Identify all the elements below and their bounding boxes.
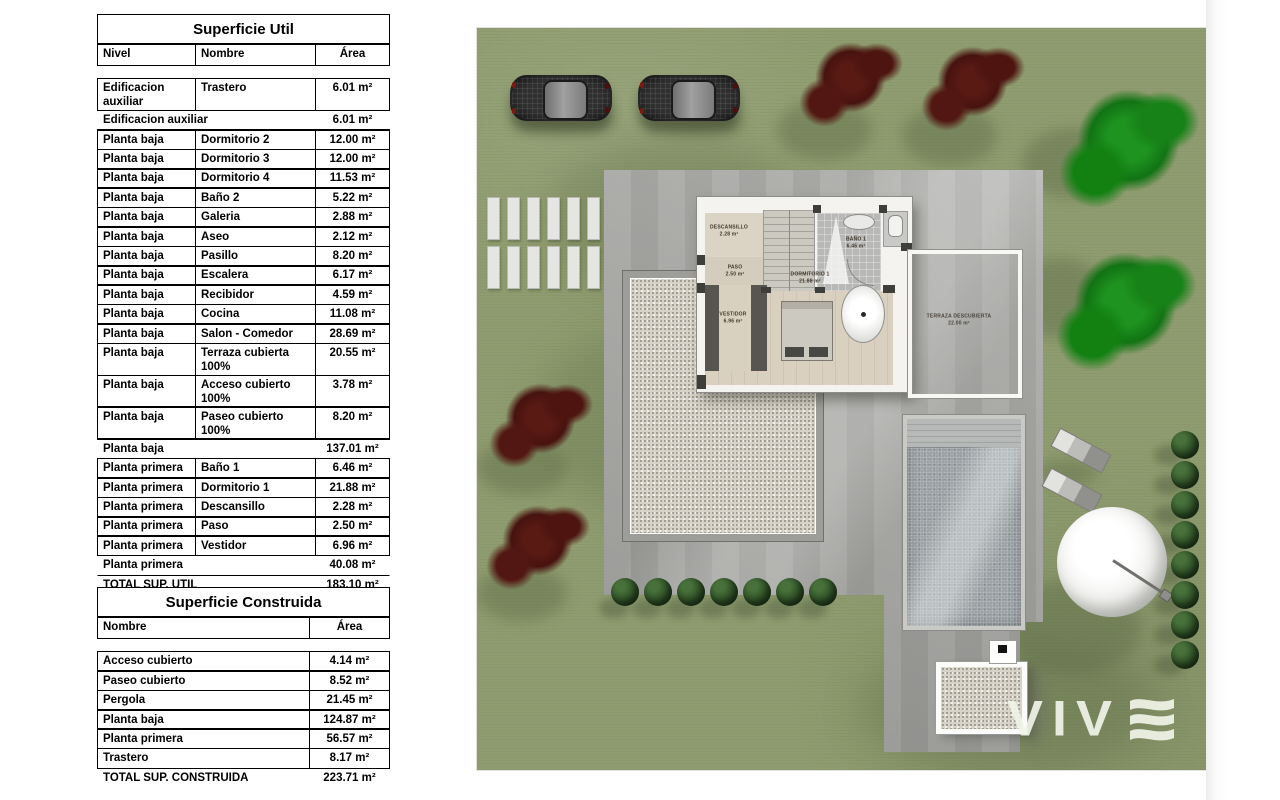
cell: Trastero — [196, 79, 316, 111]
car-top-view — [638, 75, 740, 121]
green-tree-icon — [1061, 73, 1196, 208]
wall-accent — [813, 205, 821, 213]
wall-accent — [697, 375, 706, 389]
area-value: 11.53 m² — [316, 169, 389, 188]
cell: Planta baja — [98, 150, 196, 169]
stepping-stone — [507, 246, 520, 289]
cell: Acceso cubierto — [98, 652, 310, 671]
bed-icon — [781, 301, 833, 361]
stepping-stone — [527, 246, 540, 289]
area-value: 20.55 m² — [316, 344, 389, 376]
stepping-stone — [587, 197, 600, 240]
round-bush-icon — [1171, 521, 1199, 549]
stepping-stone — [487, 246, 500, 289]
vive-e-icon — [1128, 694, 1176, 744]
swimming-pool — [903, 415, 1025, 630]
table-row: Planta baja124.87 m² — [97, 709, 390, 730]
site-plan-render: DESCANSILLO 2.28 m² PASO 2.50 m² BAÑO 1 … — [477, 28, 1206, 770]
table-row: Paseo cubierto8.52 m² — [97, 670, 390, 691]
cell: Aseo — [196, 227, 316, 246]
round-bush-icon — [1171, 431, 1199, 459]
cell: Planta primera — [98, 729, 310, 748]
area-value: 12.00 m² — [316, 130, 389, 149]
real-estate-plan-page: Superficie Util Nivel Nombre Área Edific… — [0, 0, 1280, 800]
car-glass-roof — [671, 80, 716, 120]
area-value: 3.78 m² — [316, 376, 389, 408]
table-row: Planta primeraDormitorio 121.88 m² — [97, 477, 390, 498]
page-curl-shading — [1206, 0, 1280, 800]
table-body-construida: Acceso cubierto4.14 m²Paseo cubierto8.52… — [97, 651, 390, 790]
cell: Pasillo — [196, 247, 316, 266]
row-label: Planta baja — [98, 439, 316, 458]
cell: Cocina — [196, 305, 316, 324]
cell: Planta baja — [98, 227, 196, 246]
column-header-nivel: Nivel — [98, 44, 196, 65]
table-row: Planta bajaSalon - Comedor28.69 m² — [97, 323, 390, 344]
round-bush-icon — [677, 578, 705, 606]
car-top-view — [510, 75, 612, 121]
wall-accent — [697, 255, 705, 265]
table-row: Planta bajaPaseo cubierto 100%8.20 m² — [97, 406, 390, 440]
stepping-stone — [507, 197, 520, 240]
cell: Baño 1 — [196, 459, 316, 478]
table-row: Planta bajaGaleria2.88 m² — [97, 207, 390, 228]
cell: Planta baja — [98, 188, 196, 207]
area-value: 2.28 m² — [316, 498, 389, 517]
round-bush-icon — [611, 578, 639, 606]
vive-letters: VIV — [1007, 694, 1121, 744]
room-label-dormitorio: DORMITORIO 1 21.88 m² — [791, 271, 830, 285]
area-value: 8.17 m² — [310, 749, 389, 768]
area-value: 12.00 m² — [316, 150, 389, 169]
wall-accent — [697, 283, 705, 293]
table-row: Planta primeraDescansillo2.28 m² — [97, 497, 390, 518]
pool-water — [907, 447, 1021, 626]
table-row: Planta bajaEscalera6.17 m² — [97, 265, 390, 286]
stepping-stone — [547, 197, 560, 240]
cell: Dormitorio 2 — [196, 130, 316, 149]
cell: Dormitorio 4 — [196, 169, 316, 188]
room-area: 6.96 m² — [719, 318, 746, 325]
red-tree-icon — [490, 493, 585, 588]
cell: Planta baja — [98, 130, 196, 149]
utility-box — [989, 640, 1017, 664]
cell: Vestidor — [196, 536, 316, 555]
cell: Baño 2 — [196, 188, 316, 207]
room-label-descansillo: DESCANSILLO 2.28 m² — [710, 224, 748, 238]
room-name: DORMITORIO 1 — [791, 271, 830, 278]
table-row: Pergola21.45 m² — [97, 690, 390, 711]
cell: Planta baja — [98, 169, 196, 188]
superficie-construida-table: Superficie Construida Nombre Área Acceso… — [97, 587, 390, 790]
room-name: DESCANSILLO — [710, 224, 748, 231]
wardrobe-icon — [751, 285, 767, 371]
area-value: 137.01 m² — [316, 439, 389, 458]
table-row: Planta primeraPaso2.50 m² — [97, 516, 390, 537]
table-row: Planta bajaDormitorio 411.53 m² — [97, 168, 390, 189]
room-label-bano: BAÑO 1 6.46 m² — [846, 236, 866, 250]
table-row: Planta primera56.57 m² — [97, 728, 390, 749]
stepping-stone — [547, 246, 560, 289]
cell: Planta primera — [98, 459, 196, 478]
room-label-paso: PASO 2.50 m² — [726, 264, 745, 278]
pool-cover-roller — [907, 419, 1021, 448]
table-row: Planta primeraVestidor6.96 m² — [97, 535, 390, 556]
wardrobe-icon — [705, 285, 719, 371]
round-bush-icon — [644, 578, 672, 606]
toilet-icon — [888, 215, 903, 237]
cell: Planta primera — [98, 536, 196, 555]
area-value: 2.50 m² — [316, 517, 389, 536]
green-tree-icon — [1058, 236, 1193, 371]
table-row: Planta bajaAseo2.12 m² — [97, 226, 390, 247]
cell: Planta primera — [98, 517, 196, 536]
round-bush-icon — [743, 578, 771, 606]
car-lights — [640, 82, 644, 88]
stepping-stones — [487, 197, 600, 289]
round-bush-icon — [776, 578, 804, 606]
room-area: 22.00 m² — [927, 320, 992, 327]
cell: Planta baja — [98, 247, 196, 266]
bathtub-icon — [841, 285, 885, 343]
table-row: Planta bajaRecibidor4.59 m² — [97, 284, 390, 305]
table-row: Acceso cubierto4.14 m² — [97, 651, 390, 672]
cell: Planta baja — [98, 285, 196, 304]
round-bush-icon — [1171, 641, 1199, 669]
red-tree-icon — [493, 371, 588, 466]
table-row: Planta bajaTerraza cubierta 100%20.55 m² — [97, 343, 390, 377]
round-bush-icon — [1171, 461, 1199, 489]
area-value: 223.71 m² — [310, 768, 389, 789]
cell: Terraza cubierta 100% — [196, 344, 316, 376]
cell: Galeria — [196, 208, 316, 227]
area-value: 4.14 m² — [310, 652, 389, 671]
round-bush-icon — [809, 578, 837, 606]
cell: Planta primera — [98, 498, 196, 517]
table-header-util: Nivel Nombre Área — [97, 43, 390, 66]
cell: Dormitorio 3 — [196, 150, 316, 169]
table-row: TOTAL SUP. CONSTRUIDA223.71 m² — [97, 767, 390, 790]
area-value: 8.52 m² — [310, 671, 389, 690]
table-row: Planta bajaPasillo8.20 m² — [97, 246, 390, 267]
wall-accent — [815, 287, 825, 293]
cell: Dormitorio 1 — [196, 478, 316, 497]
cell: Planta baja — [98, 266, 196, 285]
room-name: PASO — [726, 264, 745, 271]
area-value: 6.46 m² — [316, 459, 389, 478]
area-value: 40.08 m² — [316, 556, 389, 575]
vive-watermark: VIV — [1007, 692, 1176, 746]
area-value: 2.88 m² — [316, 208, 389, 227]
row-label: Planta primera — [98, 556, 316, 575]
area-value: 21.88 m² — [316, 478, 389, 497]
table-header-construida: Nombre Área — [97, 616, 390, 639]
stepping-stone — [587, 246, 600, 289]
row-label: Edificacion auxiliar — [98, 111, 316, 130]
table-row: Planta bajaAcceso cubierto 100%3.78 m² — [97, 375, 390, 409]
table-row: Planta bajaDormitorio 212.00 m² — [97, 129, 390, 150]
room-label-vestidor: VESTIDOR 6.96 m² — [719, 311, 746, 325]
cell: Planta baja — [98, 710, 310, 729]
cell: Salon - Comedor — [196, 324, 316, 343]
cell: Planta baja — [98, 305, 196, 324]
table-body-util: Edificacion auxiliarTrastero6.01 m²Edifi… — [97, 78, 390, 597]
column-header-nombre: Nombre — [98, 617, 310, 638]
round-bush-icon — [1171, 551, 1199, 579]
stepping-stone — [527, 197, 540, 240]
cell: Planta baja — [98, 376, 196, 408]
area-value: 4.59 m² — [316, 285, 389, 304]
area-value: 5.22 m² — [316, 188, 389, 207]
cell: Paseo cubierto — [98, 671, 310, 690]
cell: Descansillo — [196, 498, 316, 517]
stepping-stone — [487, 197, 500, 240]
table-row: Edificacion auxiliar6.01 m² — [97, 110, 390, 131]
table-row: Planta bajaDormitorio 312.00 m² — [97, 149, 390, 170]
cell: Planta baja — [98, 344, 196, 376]
table-row: Trastero8.17 m² — [97, 748, 390, 769]
column-header-area: Área — [310, 617, 389, 638]
row-label: TOTAL SUP. CONSTRUIDA — [98, 768, 310, 789]
table-row: Planta primeraBaño 16.46 m² — [97, 458, 390, 479]
area-value: 6.96 m² — [316, 536, 389, 555]
area-value: 6.17 m² — [316, 266, 389, 285]
cell: Planta baja — [98, 407, 196, 439]
area-value: 124.87 m² — [310, 710, 389, 729]
car-lights — [512, 82, 516, 88]
cell: Paseo cubierto 100% — [196, 407, 316, 439]
round-bush-icon — [710, 578, 738, 606]
table-row: Planta bajaCocina11.08 m² — [97, 304, 390, 325]
cell: Paso — [196, 517, 316, 536]
cell: Edificacion auxiliar — [98, 79, 196, 111]
cell: Planta primera — [98, 478, 196, 497]
area-value: 2.12 m² — [316, 227, 389, 246]
car-glass-roof — [543, 80, 588, 120]
wall-accent — [761, 287, 771, 293]
wall-accent — [879, 205, 887, 213]
round-bush-icon — [1171, 491, 1199, 519]
room-area: 2.28 m² — [710, 231, 748, 238]
cell: Planta baja — [98, 208, 196, 227]
cell: Acceso cubierto 100% — [196, 376, 316, 408]
area-value: 6.01 m² — [316, 111, 389, 130]
area-value: 8.20 m² — [316, 407, 389, 439]
room-area: 6.46 m² — [846, 243, 866, 250]
cell: Trastero — [98, 749, 310, 768]
cell: Escalera — [196, 266, 316, 285]
table-row: Planta primera40.08 m² — [97, 555, 390, 576]
room-area: 2.50 m² — [726, 271, 745, 278]
room-name: VESTIDOR — [719, 311, 746, 318]
area-value: 11.08 m² — [316, 305, 389, 324]
column-header-nombre: Nombre — [196, 44, 316, 65]
superficie-util-table: Superficie Util Nivel Nombre Área Edific… — [97, 14, 390, 597]
round-bush-icon — [1171, 581, 1199, 609]
cell: Recibidor — [196, 285, 316, 304]
area-value: 21.45 m² — [310, 691, 389, 710]
stepping-stone — [567, 197, 580, 240]
cell: Planta baja — [98, 324, 196, 343]
table-row: Planta bajaBaño 25.22 m² — [97, 187, 390, 208]
table-title-construida: Superficie Construida — [97, 587, 390, 618]
red-tree-icon — [925, 34, 1020, 129]
area-value: 6.01 m² — [316, 79, 389, 111]
wall-accent — [883, 285, 895, 293]
table-row: Planta baja137.01 m² — [97, 438, 390, 459]
sink-icon — [843, 214, 875, 230]
column-header-area: Área — [316, 44, 389, 65]
stepping-stone — [567, 246, 580, 289]
room-name: TERRAZA DESCUBIERTA — [927, 313, 992, 320]
room-vestidor-floor — [719, 285, 751, 371]
room-name: BAÑO 1 — [846, 236, 866, 243]
round-bush-icon — [1171, 611, 1199, 639]
area-value: 8.20 m² — [316, 247, 389, 266]
table-title-util: Superficie Util — [97, 14, 390, 45]
cell: Pergola — [98, 691, 310, 710]
area-value: 28.69 m² — [316, 324, 389, 343]
table-row: Edificacion auxiliarTrastero6.01 m² — [97, 78, 390, 112]
area-value: 56.57 m² — [310, 729, 389, 748]
red-tree-icon — [803, 30, 898, 125]
room-label-terraza: TERRAZA DESCUBIERTA 22.00 m² — [927, 313, 992, 327]
room-area: 21.88 m² — [791, 278, 830, 285]
